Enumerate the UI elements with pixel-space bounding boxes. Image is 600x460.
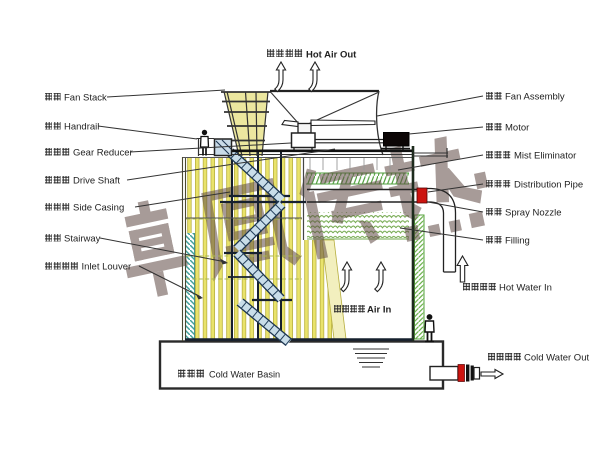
svg-text:Cold Water Out: Cold Water Out xyxy=(524,353,589,364)
svg-text:Hot Air Out: Hot Air Out xyxy=(306,50,357,61)
svg-text:Motor: Motor xyxy=(505,123,529,134)
svg-text:Handrail: Handrail xyxy=(64,122,99,133)
svg-text:Distribution Pipe: Distribution Pipe xyxy=(514,180,583,191)
svg-text:Spray Nozzle: Spray Nozzle xyxy=(505,208,562,219)
svg-text:Hot Water In: Hot Water In xyxy=(499,283,552,294)
svg-text:Gear Reducer: Gear Reducer xyxy=(73,148,133,159)
svg-text:Filling: Filling xyxy=(505,236,530,247)
svg-text:Fan Assembly: Fan Assembly xyxy=(505,92,565,103)
svg-text:Mist Eliminator: Mist Eliminator xyxy=(514,151,576,162)
svg-text:Side Casing: Side Casing xyxy=(73,203,124,214)
svg-text:Air In: Air In xyxy=(367,305,391,316)
svg-text:Inlet Louver: Inlet Louver xyxy=(82,262,132,273)
svg-text:Cold Water Basin: Cold Water Basin xyxy=(209,370,280,380)
svg-text:Drive Shaft: Drive Shaft xyxy=(73,176,120,187)
svg-text:Stairway: Stairway xyxy=(64,234,101,245)
svg-text:Fan Stack: Fan Stack xyxy=(64,93,107,104)
